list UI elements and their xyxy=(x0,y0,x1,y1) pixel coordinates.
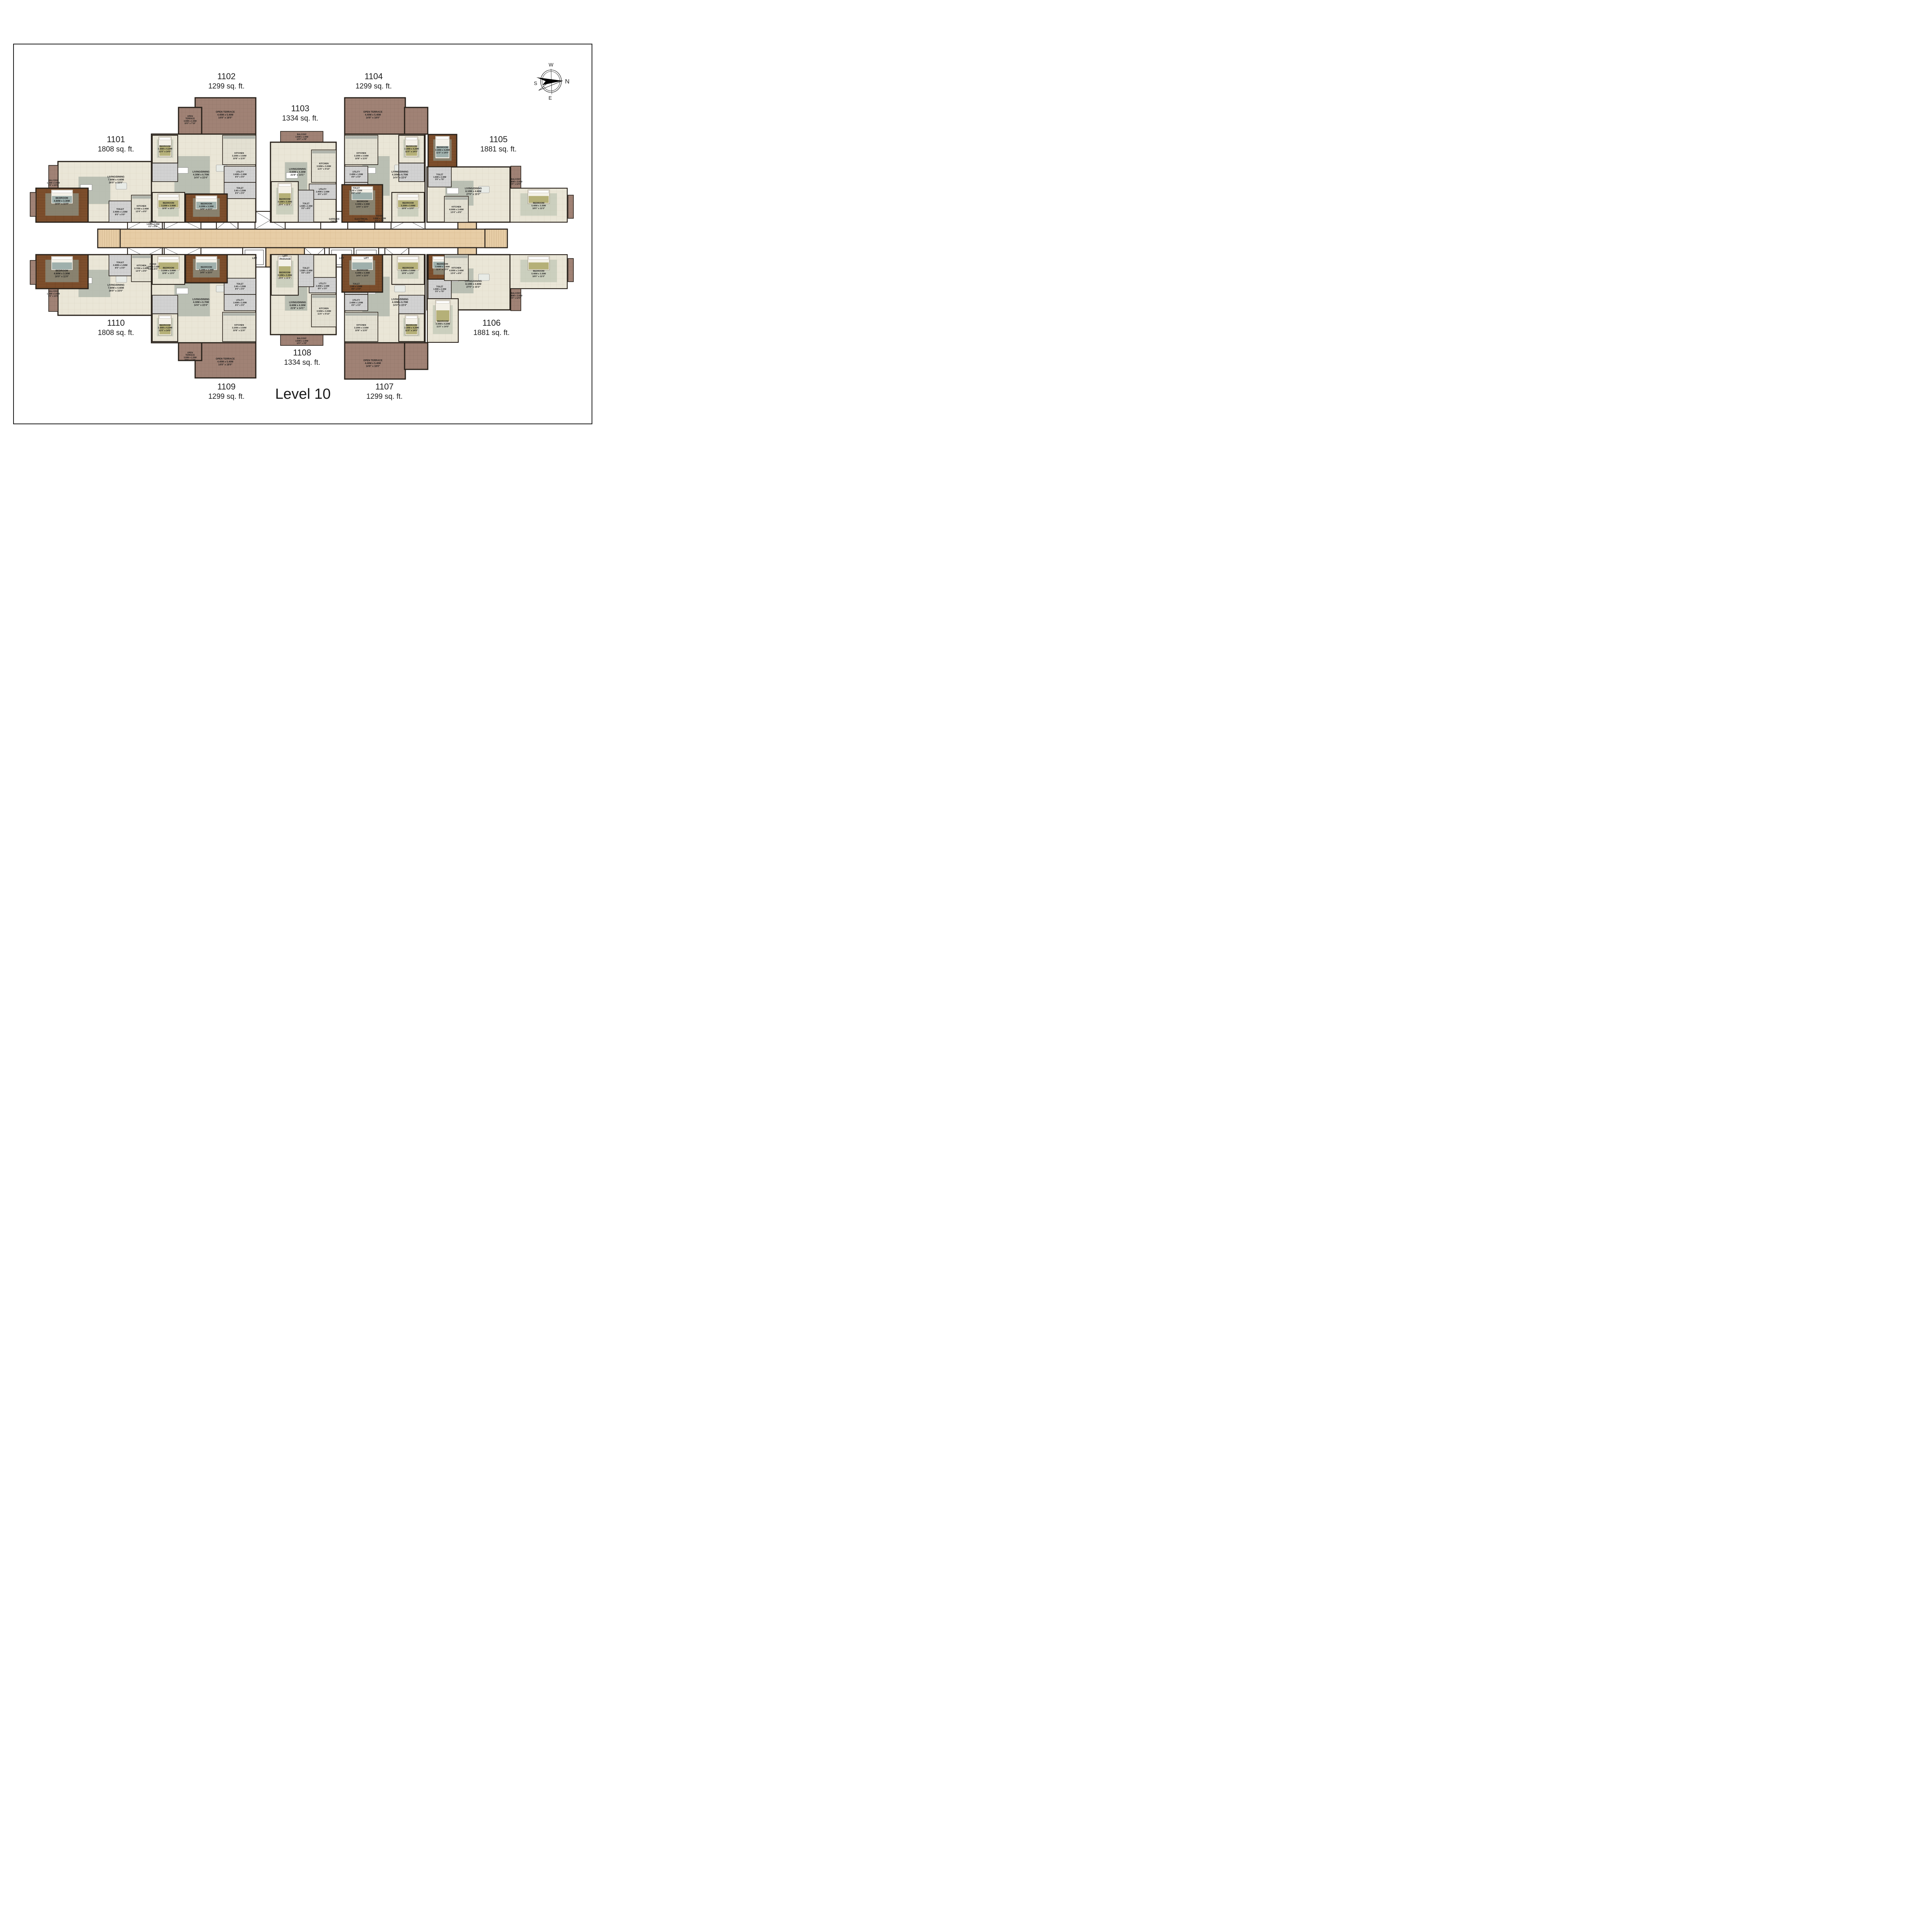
room-corridor xyxy=(98,229,507,248)
unit-label-1108: 11081334 sq. ft. xyxy=(284,348,320,367)
room-label: LIVING/DINING7.80M x 4.60M26'0" x 15'0" xyxy=(107,176,124,184)
room-label: OPEN TERRACE4.40M x 5.40M14'8" x 18'0" xyxy=(216,111,235,119)
room-label: BEDROOM4.30M x 3.30M14'4" x 11'0" xyxy=(355,269,370,277)
unit-label-1102: 11021299 sq. ft. xyxy=(208,71,245,90)
room-label: LIVING/DINING4.30M x 6.70M14'4" x 22'4" xyxy=(192,298,209,307)
room-label: BEDROOM3.40M x 3.90M11'4" x 13'0" xyxy=(435,263,450,271)
unit-number: 1103 xyxy=(291,104,309,113)
floor-plan-page: LIFTLIFTPASSAGELIFTLIFTGARBAGECHUTEELECT… xyxy=(0,0,606,468)
room-label: BEDROOM3.30M x 4.20M11'0" x 14'0" xyxy=(435,146,450,154)
unit-number: 1109 xyxy=(217,382,235,391)
room-label: BEDROOM5.40M x 3.30M18'0" x 11'0" xyxy=(531,270,546,278)
room-label: LIFT xyxy=(364,257,369,260)
unit-number: 1105 xyxy=(489,134,507,144)
unit-area: 1881 sq. ft. xyxy=(480,145,517,153)
room-open-terrace xyxy=(405,343,428,369)
room-label: BEDROOM3.20M x 3.90M10'8" x 13'0" xyxy=(401,202,415,210)
room-label: OPEN TERRACE4.40M x 5.40M14'8" x 18'0" xyxy=(363,359,382,368)
room-label: BEDROOM3.30M x 4.20M11'0" x 14'0" xyxy=(404,145,419,153)
room-balcony xyxy=(30,260,36,284)
unit-number: 1102 xyxy=(217,71,235,81)
room-label: LIVING/DINING4.30M x 6.70M14'4" x 22'4" xyxy=(192,171,209,179)
room-label: BEDROOM5.40M x 3.30M18'0" x 11'0" xyxy=(531,202,546,210)
compass-needle-icon xyxy=(536,77,563,85)
room-open-terrace xyxy=(405,107,428,134)
room-label: BEDROOM4.80M x 3.30M16'0" x 11'0" xyxy=(54,270,70,278)
unit-number: 1107 xyxy=(375,382,393,391)
unit-number: 1104 xyxy=(364,71,383,81)
compass-e: E xyxy=(549,95,552,101)
room-balcony xyxy=(568,195,573,218)
room-label: BEDROOM3.30M x 4.20M11'0" x 14'0" xyxy=(158,324,172,332)
room-kitchen xyxy=(345,135,378,165)
room-label: LIVING/DINING4.30M x 6.70M14'4" x 22'4" xyxy=(391,298,408,307)
unit-area: 1881 sq. ft. xyxy=(473,329,510,337)
compass-s: S xyxy=(534,80,537,86)
compass-w: W xyxy=(549,62,554,68)
unit-area: 1334 sq. ft. xyxy=(284,359,320,367)
unit-label-1103: 11031334 sq. ft. xyxy=(282,104,318,122)
unit-area: 1808 sq. ft. xyxy=(98,329,134,337)
room-label: LIVING/DINING8.10M x 4.60M27'0" x 15'3" xyxy=(465,187,482,196)
room-label: BEDROOM3.30M x 4.20M11'0" x 14'0" xyxy=(435,320,450,328)
room-label: BEDROOM4.20M x 3.30M14'0" x 11'0" xyxy=(199,203,214,211)
room-label: BALCONY1.65M x 3.60M5'5" x 12'0" xyxy=(47,290,60,298)
unit-label-1110: 11101808 sq. ft. xyxy=(98,318,134,337)
room-label: OPEN TERRACE4.40M x 5.40M14'8" x 18'0" xyxy=(363,111,382,119)
room-label: BEDROOM3.20M x 3.90M10'8" x 13'0" xyxy=(401,267,415,275)
unit-number: 1106 xyxy=(482,318,500,328)
unit-label-1107: 11071299 sq. ft. xyxy=(366,382,403,401)
room-label: LIFT xyxy=(252,257,257,260)
unit-label-1109: 11091299 sq. ft. xyxy=(208,382,245,401)
room-label: BEDROOM4.80M x 3.30M16'0" x 11'0" xyxy=(54,197,70,206)
room-label: BALCONY1.65M x 3.60M5'5" x 12'0" xyxy=(47,179,60,187)
room-label: LIVING/DINING8.10M x 4.60M27'0" x 15'3" xyxy=(465,280,482,289)
room-label: LIVING/DINING6.60M x 4.30M21'8" x 14'1" xyxy=(289,301,306,310)
room-toilet xyxy=(152,295,178,314)
room-label: LIVING/DINING6.60M x 4.30M21'8" x 14'1" xyxy=(289,168,306,177)
unit-area: 1808 sq. ft. xyxy=(98,145,134,153)
room-label: BEDROOM4.30M x 3.30M14'4" x 11'0" xyxy=(355,201,370,208)
unit-area: 1299 sq. ft. xyxy=(366,393,403,401)
room-label: BEDROOM3.10M x 3.30M10'4" x 11'0" xyxy=(277,272,292,279)
room-label: BALCONY1.80M x 3.60M6'0" x 12'0" xyxy=(509,292,522,299)
room-balcony xyxy=(30,192,36,216)
room-label: LIVING/DINING7.80M x 4.60M26'0" x 15'0" xyxy=(107,284,124,293)
room-label: BALCONY3.60M x 1.00M12'0" x 3'8" xyxy=(295,337,308,345)
unit-area: 1299 sq. ft. xyxy=(355,82,392,90)
unit-number: 1108 xyxy=(293,348,311,357)
unit-area: 1334 sq. ft. xyxy=(282,114,318,122)
unit-area: 1299 sq. ft. xyxy=(208,393,245,401)
room-label: BEDROOM3.30M x 4.20M11'0" x 14'0" xyxy=(404,324,419,332)
room-toilet xyxy=(152,163,178,182)
unit-label-1101: 11011808 sq. ft. xyxy=(98,134,134,153)
floor-plan-svg: LIFTLIFTPASSAGELIFTLIFTGARBAGECHUTEELECT… xyxy=(0,0,606,468)
room-label: BALCONY3.60M x 1.00M12'0" x 3'8" xyxy=(295,133,308,141)
room-label: BEDROOM3.30M x 4.20M11'0" x 14'0" xyxy=(158,145,172,153)
room-label: BALCONY1.80M x 3.60M6'0" x 12'0" xyxy=(509,178,522,185)
unit-number: 1101 xyxy=(107,134,125,144)
room-kitchen xyxy=(223,135,256,165)
room-staircase xyxy=(485,229,507,248)
room-label: LIFT xyxy=(339,257,344,260)
room-label: BEDROOM3.10M x 3.30M10'4" x 11'0" xyxy=(277,198,292,206)
compass-rose: W N E S xyxy=(534,62,570,101)
unit-label-1104: 11041299 sq. ft. xyxy=(355,71,392,90)
room-balcony xyxy=(568,259,573,282)
room-label: LIVING/DINING4.30M x 6.70M14'4" x 22'4" xyxy=(391,171,408,179)
room-label: BEDROOM3.20M x 3.90M10'8" x 13'0" xyxy=(161,267,176,275)
room-label: BEDROOM3.20M x 3.90M10'8" x 13'0" xyxy=(161,202,176,210)
level-title: Level 10 xyxy=(275,386,331,402)
room-label: OPEN TERRACE4.40M x 5.40M14'8" x 18'0" xyxy=(216,358,235,366)
unit-number: 1110 xyxy=(107,318,125,328)
room-staircase xyxy=(98,229,120,248)
unit-label-1105: 11051881 sq. ft. xyxy=(480,134,517,153)
unit-label-1106: 11061881 sq. ft. xyxy=(473,318,510,337)
unit-area: 1299 sq. ft. xyxy=(208,82,245,90)
compass-n: N xyxy=(565,78,570,85)
room-label: BEDROOM4.20M x 3.30M14'0" x 11'0" xyxy=(199,266,214,274)
